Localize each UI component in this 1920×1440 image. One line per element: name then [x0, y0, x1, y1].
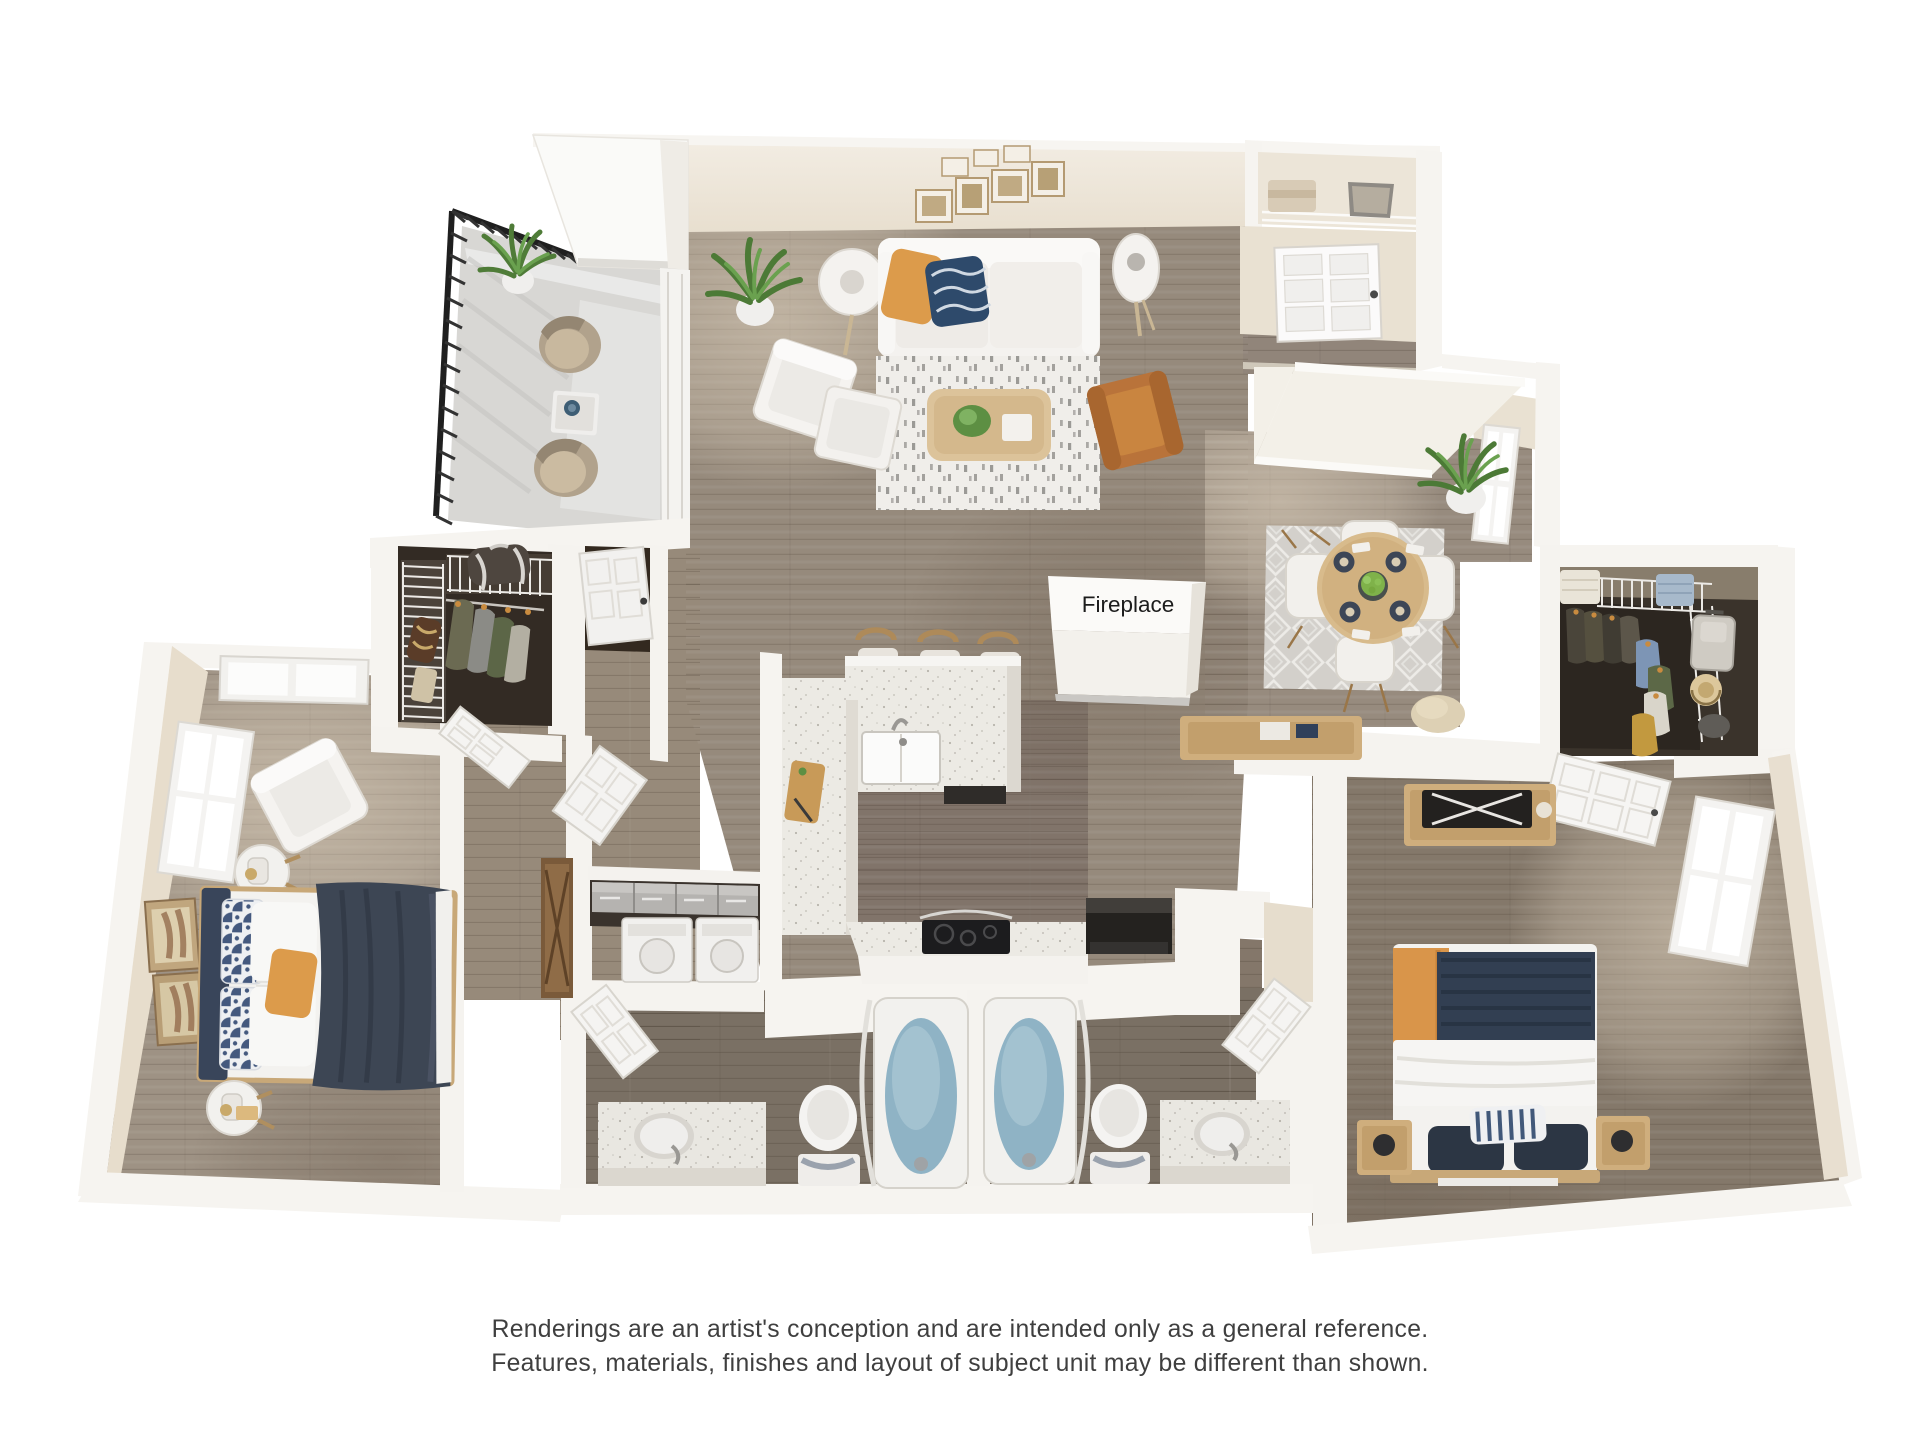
svg-text:Fireplace: Fireplace [1082, 592, 1175, 617]
